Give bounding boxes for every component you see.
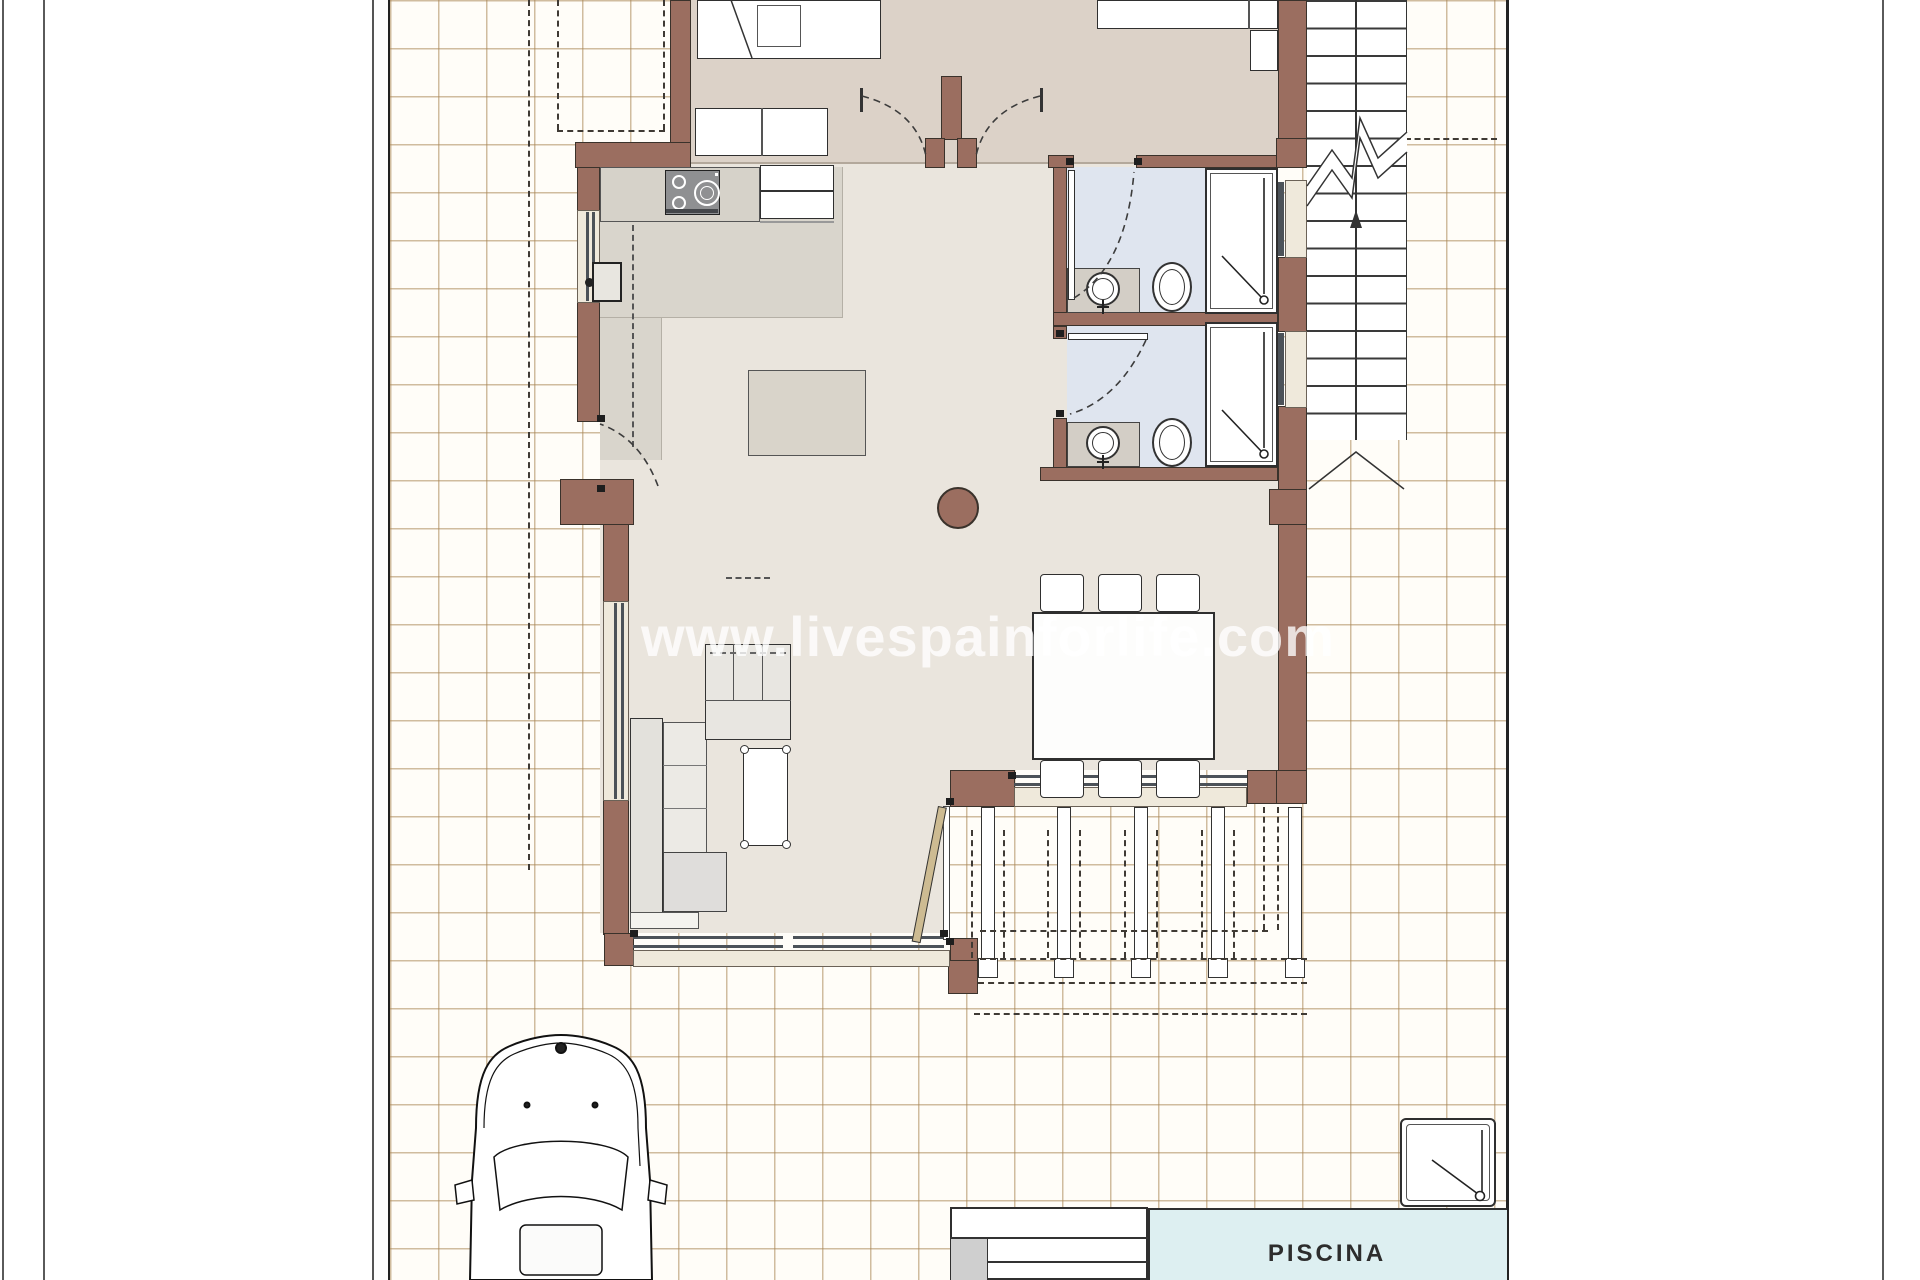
hall-door-arc-left bbox=[862, 96, 926, 156]
bath2-door-arc bbox=[1070, 340, 1146, 414]
bed-fold-line bbox=[731, 0, 752, 58]
bath1-door-arc bbox=[1074, 172, 1134, 298]
car-icon bbox=[455, 1035, 667, 1280]
kitchen-door-arc bbox=[600, 424, 658, 486]
watermark: www.livespainforlife.com bbox=[608, 604, 1368, 669]
stairs-chevron bbox=[1309, 452, 1404, 489]
floor-plan-sheet: PISCINA bbox=[0, 0, 1920, 1280]
hall-door-arc-right bbox=[976, 96, 1040, 156]
